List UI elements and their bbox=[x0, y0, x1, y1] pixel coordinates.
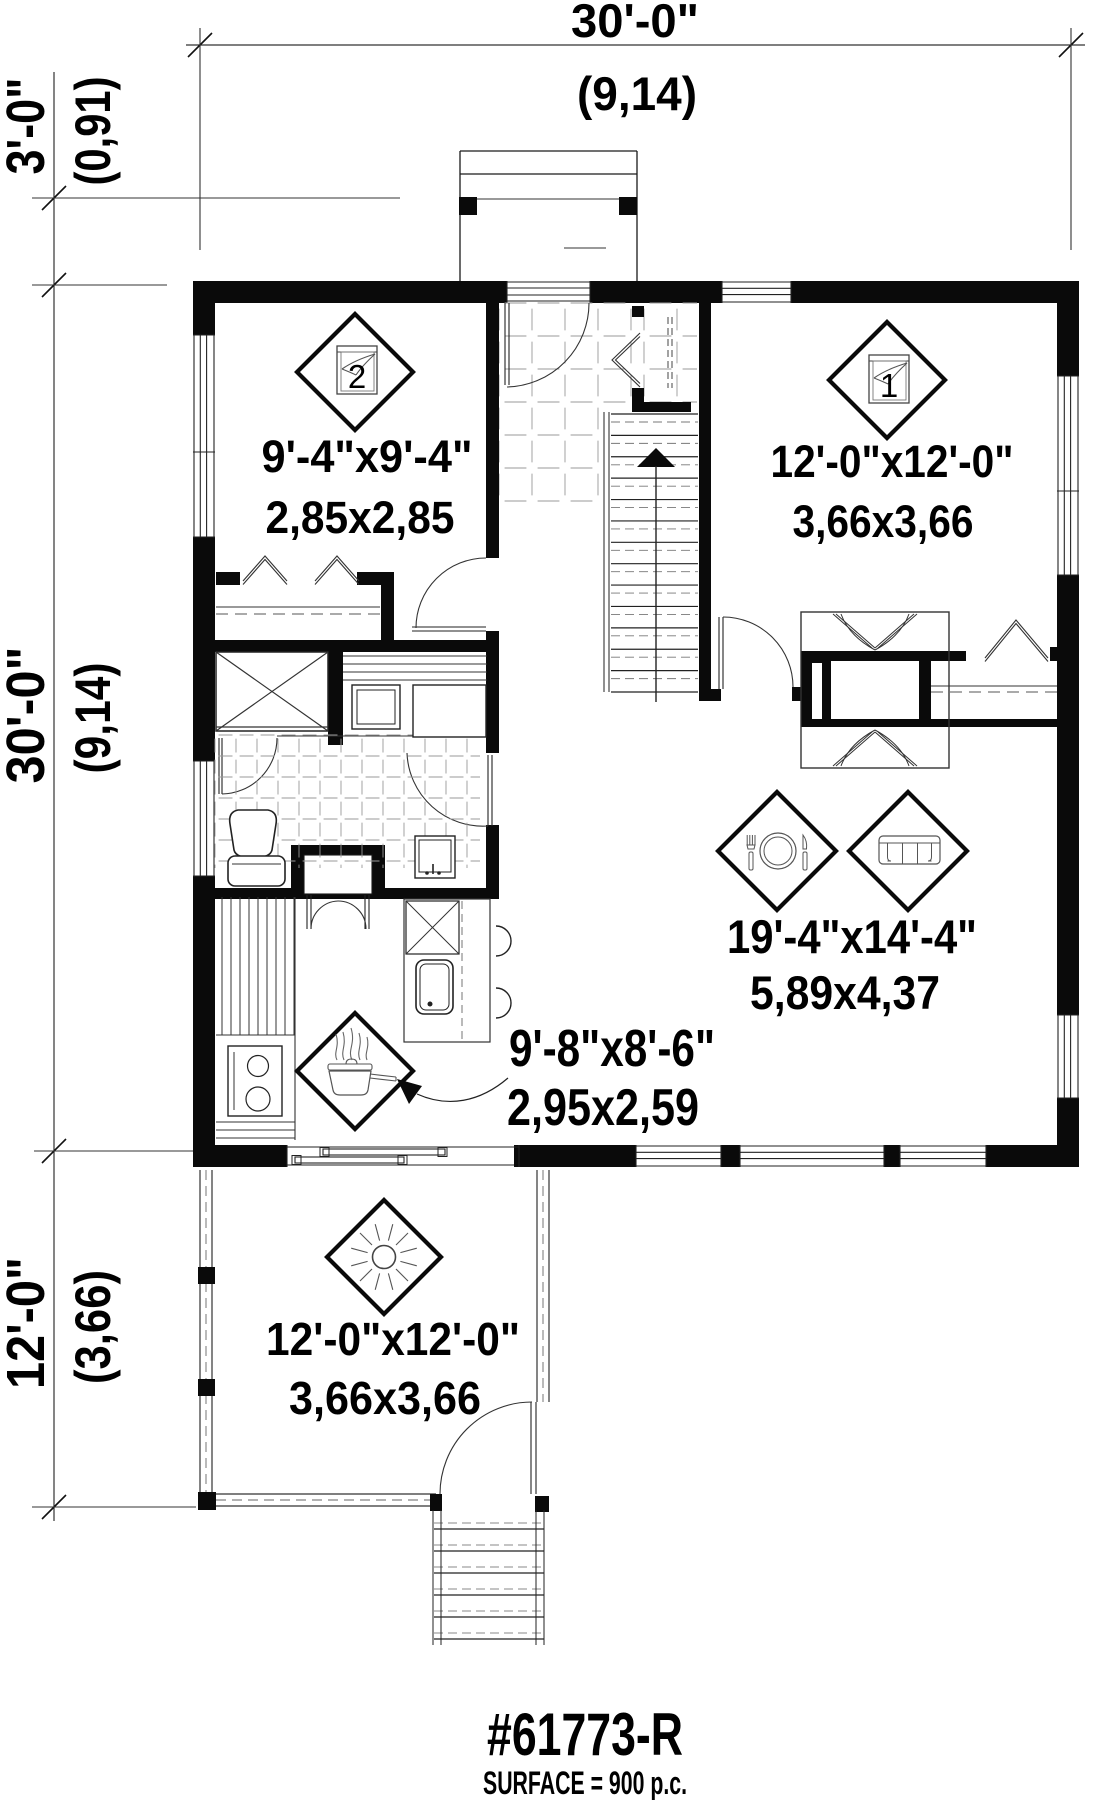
svg-text:(3,66): (3,66) bbox=[65, 1270, 121, 1384]
svg-text:12'-0"x12'-0": 12'-0"x12'-0" bbox=[771, 436, 1014, 487]
svg-text:3'-0": 3'-0" bbox=[0, 78, 56, 175]
svg-text:SURFACE = 900 p.c.: SURFACE = 900 p.c. bbox=[483, 1765, 687, 1800]
svg-text:#61773-R: #61773-R bbox=[487, 1701, 683, 1768]
svg-text:5,89x4,37: 5,89x4,37 bbox=[750, 966, 940, 1019]
svg-text:1: 1 bbox=[880, 367, 898, 404]
svg-text:2: 2 bbox=[348, 358, 366, 395]
svg-text:3,66x3,66: 3,66x3,66 bbox=[289, 1372, 481, 1424]
svg-text:12'-0"x12'-0": 12'-0"x12'-0" bbox=[266, 1313, 520, 1365]
svg-text:(9,14): (9,14) bbox=[577, 67, 697, 120]
svg-text:12'-0": 12'-0" bbox=[0, 1257, 56, 1389]
svg-text:2,85x2,85: 2,85x2,85 bbox=[266, 492, 455, 543]
svg-text:30'-0": 30'-0" bbox=[571, 0, 699, 47]
svg-text:(9,14): (9,14) bbox=[65, 663, 121, 774]
svg-text:19'-4"x14'-4": 19'-4"x14'-4" bbox=[727, 910, 977, 963]
svg-text:9'-8"x8'-6": 9'-8"x8'-6" bbox=[509, 1020, 715, 1078]
svg-text:(0,91): (0,91) bbox=[65, 77, 121, 186]
svg-text:2,95x2,59: 2,95x2,59 bbox=[507, 1079, 699, 1137]
svg-text:9'-4"x9'-4": 9'-4"x9'-4" bbox=[262, 431, 473, 482]
svg-text:30'-0": 30'-0" bbox=[0, 647, 56, 784]
svg-text:3,66x3,66: 3,66x3,66 bbox=[793, 496, 974, 547]
